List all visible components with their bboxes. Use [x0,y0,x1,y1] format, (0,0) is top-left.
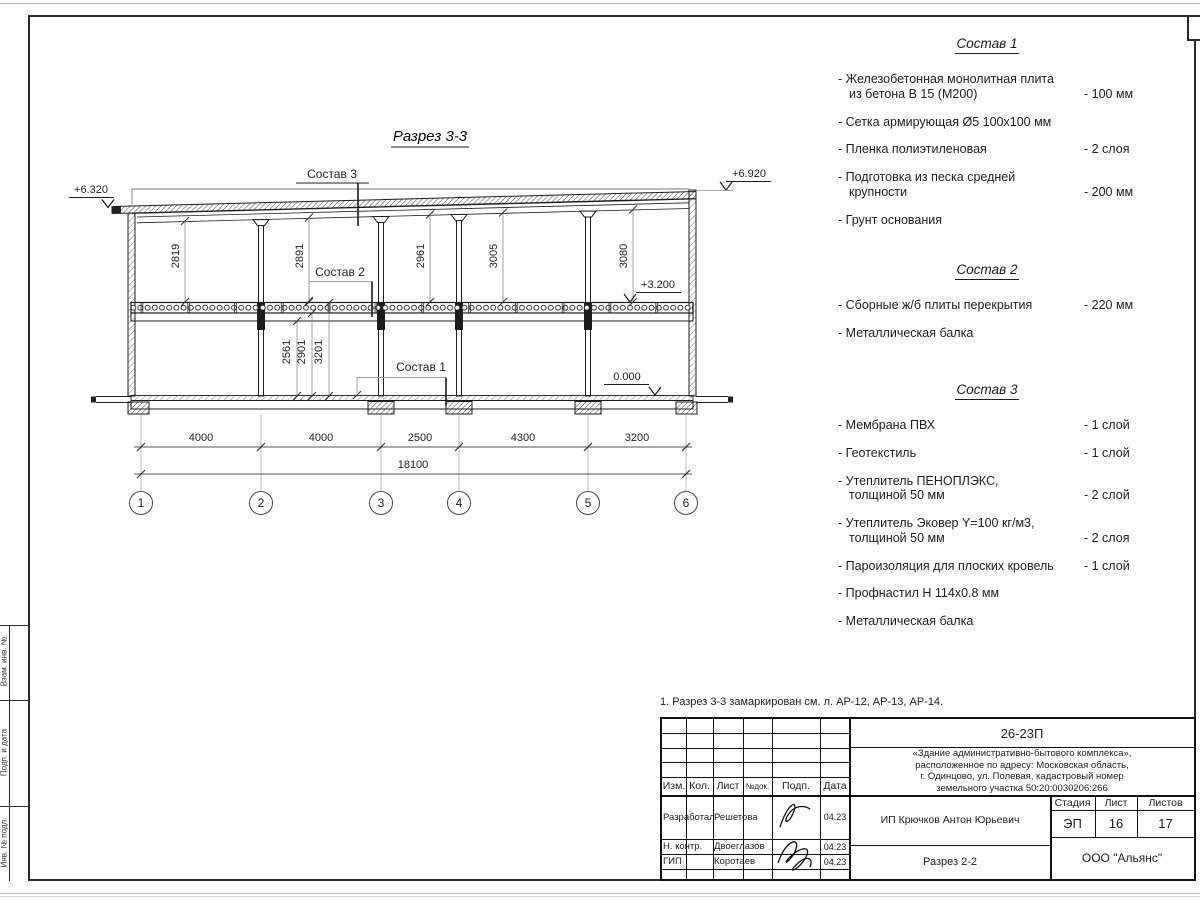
list-item: - Утеплитель ПЕНОПЛЭКС, толщиной 50 мм -… [838,474,1136,504]
roof-left-cap [112,207,121,214]
col-ndok: №док. [743,777,772,795]
list-item: - Мембрана ПВХ - 1 слой [838,418,1136,433]
item-name: - Подготовка из песка средней крупности [838,170,1084,200]
composition-3-title: Состав 3 [838,382,1136,397]
sheet-label: Лист [1095,795,1137,810]
right-apron-cap [728,397,733,403]
foundation-pad [368,402,394,415]
item-value: - 2 слоя [1084,142,1136,157]
item-name: - Металлическая балка [838,614,1084,629]
foundation-pad [575,402,601,415]
axis-6: 6 [683,496,690,510]
client: ИП Крючков Антон Юрьевич [850,795,1050,845]
composition-list-3: Состав 3 - Мембрана ПВХ - 1 слой - Геоте… [838,382,1136,642]
storey1-dimensions: 2561 2901 3201 [281,299,333,400]
list-item: - Профнастил Н 114х0.8 мм [838,586,1136,601]
row3-date: 04.23 [820,854,850,869]
row2-date: 04.23 [820,839,850,854]
item-name: - Грунт основания [838,213,1084,228]
item-value: - 1 слой [1084,418,1136,433]
axis-3: 3 [378,496,385,510]
paper-edge-bottom-shadow [0,896,1200,897]
item-value: - 220 мм [1084,298,1136,313]
row2-role: Н. контр. [663,839,713,854]
item-name: - Сетка армирующая Ø5 100х100 мм [838,115,1084,130]
section-drawing: Разрез 3-3 [0,0,780,545]
composition-list-2: Состав 2 - Сборные ж/б плиты перекрытия … [838,262,1136,354]
floor-beam [131,313,693,321]
item-name: - Утеплитель Эковер Y=100 кг/м3, толщино… [838,516,1084,546]
col-izm: Изм. [662,777,686,795]
ground-slab [91,396,733,410]
strip-line [0,625,28,626]
list-item: - Пленка полиэтиленовая - 2 слоя [838,142,1136,157]
paper-edge-bottom [0,893,1200,894]
axis-5: 5 [585,496,592,510]
column-upper [259,226,264,303]
row3-role: ГИП [663,854,713,869]
sheet-value: 16 [1095,810,1137,837]
dim-span2: 4000 [309,432,333,444]
item-name: - Пароизоляция для плоских кровель [838,559,1084,574]
composition-2-title: Состав 2 [838,262,1136,277]
col-podp: Подп. [772,777,820,795]
elev-top-right: +6.920 [732,168,766,180]
column-capital [451,215,467,221]
item-value: - 100 мм [1084,87,1136,102]
label-sostav1: Состав 1 [396,360,446,374]
elev-floor2: +3.200 [641,279,675,291]
item-value: - 1 слой [1084,446,1136,461]
column-lower [259,330,264,397]
dim-bay3: 2961 [415,244,427,268]
view-title-text: Разрез 3-3 [393,128,468,145]
row1-date: 04.23 [820,795,850,839]
sheet-note: 1. Разрез 3-3 замаркирован см. л. АР-12,… [660,696,943,708]
foundation-pad [676,402,697,414]
elev-ground: 0.000 [613,371,641,383]
dim-span3: 2500 [408,432,432,444]
column-upper [586,217,591,302]
col-kol: Кол. [686,777,713,795]
row3-name: Коротаев [714,854,772,869]
list-item: - Грунт основания [838,213,1136,228]
dim-bay5: 3080 [618,244,630,268]
dim-span4: 4300 [511,432,535,444]
view-title: Разрез 3-3 [391,128,469,147]
dim-bay4: 3005 [488,244,500,268]
strip-label-vzam: Взам. инв. № [0,631,9,693]
item-name: - Сборные ж/б плиты перекрытия [838,298,1084,313]
column-capital [253,220,269,226]
column-capital [580,211,596,217]
strip-divider [9,625,10,881]
label-sostav3: Состав 3 [307,167,357,181]
foundation-pad [128,402,149,414]
signature-2 [778,842,811,870]
strip-line [0,806,28,807]
sheets-label: Листов [1137,795,1194,810]
company: ООО "Альянс" [1050,837,1194,879]
item-value: - 200 мм [1084,185,1136,200]
composition-1-title: Состав 1 [838,36,1136,51]
format-box [1187,15,1200,41]
row1-role: Разработал [663,795,713,839]
dim-span5: 3200 [625,432,649,444]
title-block: Изм. Кол. Лист №док. Подп. Дата Разработ… [660,717,1196,881]
item-value: - 2 слоя [1084,531,1136,546]
signature-1 [780,804,810,827]
list-item: - Подготовка из песка средней крупности … [838,170,1136,200]
column-capital [373,217,389,223]
list-item: - Металлическая балка [838,326,1136,341]
strip-line [0,700,28,701]
floor-slab [131,303,693,322]
stage-value: ЭП [1050,810,1095,837]
list-item: - Геотекстиль - 1 слой [838,446,1136,461]
list-item: - Пароизоляция для плоских кровель - 1 с… [838,559,1136,574]
list-item: - Утеплитель Эковер Y=100 кг/м3, толщино… [838,516,1136,546]
dim-f1-c: 3201 [313,340,325,364]
col-list: Лист [713,777,743,795]
signatures [772,795,820,879]
drawing-sheet: { "page": { "note": "1. Разрез 3-3 замар… [0,0,1200,900]
composition-list-1: Состав 1 - Железобетонная монолитная пли… [838,36,1136,240]
dim-bay1: 2819 [170,244,182,268]
column-lower [586,330,591,397]
column-upper [457,221,462,303]
item-value: - 1 слой [1084,559,1136,574]
item-value: - 2 слой [1084,488,1136,503]
column-lower [457,330,462,397]
sheet-title: Разрез 2-2 [850,845,1050,879]
right-wall [689,190,696,396]
bay-dimensions: 2819 2891 2961 3005 3080 [170,206,637,307]
axis-2: 2 [258,496,265,510]
dim-span1: 4000 [189,432,213,444]
roof [112,192,696,223]
list-item: - Сетка армирующая Ø5 100х100 мм [838,115,1136,130]
list-item: - Железобетонная монолитная плита из бет… [838,72,1136,102]
item-name: - Металлическая балка [838,326,1084,341]
sheets-value: 17 [1137,810,1194,837]
dim-total: 18100 [398,459,429,471]
item-name: - Пленка полиэтиленовая [838,142,1084,157]
span-dimensions: 4000 4000 2500 4300 3200 18100 [134,415,692,512]
project-description: «Здание административно-бытового комплек… [850,747,1194,795]
doc-number: 26-23П [850,719,1194,747]
item-name: - Геотекстиль [838,446,1084,461]
stage-label: Стадия [1050,795,1095,810]
column-lower [379,330,384,397]
column-upper [379,223,384,303]
list-item: - Сборные ж/б плиты перекрытия - 220 мм [838,298,1136,313]
col-data: Дата [820,777,850,795]
elev-top-left: +6.320 [74,184,108,196]
foundation-pad [446,402,472,415]
list-item: - Металлическая балка [838,614,1136,629]
item-name: - Железобетонная монолитная плита из бет… [838,72,1084,102]
dim-f1-a: 2561 [281,340,293,364]
row2-name: Двоеглазов [714,839,772,854]
strip-label-podp: Подп. и дата [0,722,9,784]
strip-label-inv: Инв. № подл. [0,812,9,874]
dim-f1-b: 2901 [296,340,308,364]
dim-bay2: 2891 [294,244,306,268]
left-apron-cap [91,397,96,403]
item-name: - Утеплитель ПЕНОПЛЭКС, толщиной 50 мм [838,474,1084,504]
label-sostav2: Состав 2 [315,265,365,279]
axis-1: 1 [138,496,145,510]
axis-bubbles: 1 2 3 4 5 6 [130,492,698,515]
item-name: - Профнастил Н 114х0.8 мм [838,586,1084,601]
item-name: - Мембрана ПВХ [838,418,1084,433]
row1-name: Решетова [714,795,772,839]
axis-4: 4 [456,496,463,510]
